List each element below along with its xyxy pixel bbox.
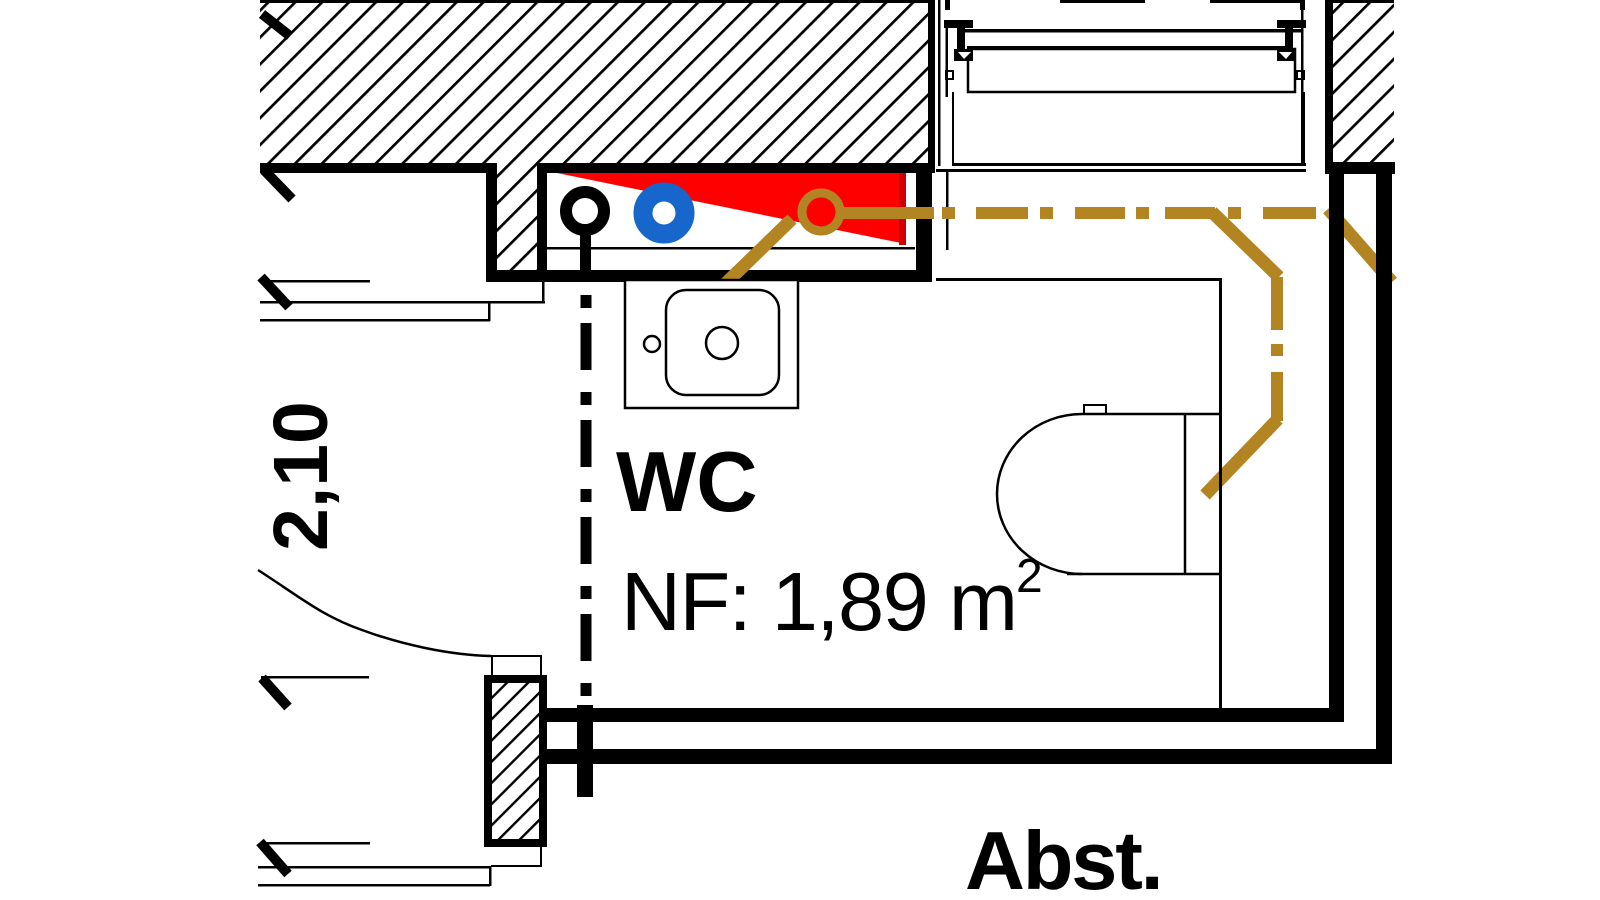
svg-text:WC: WC: [616, 435, 758, 530]
svg-text:NF: 1,89 m: NF: 1,89 m: [621, 555, 1017, 648]
svg-text:Abst.: Abst.: [965, 814, 1162, 900]
svg-text:2,10: 2,10: [258, 401, 344, 551]
